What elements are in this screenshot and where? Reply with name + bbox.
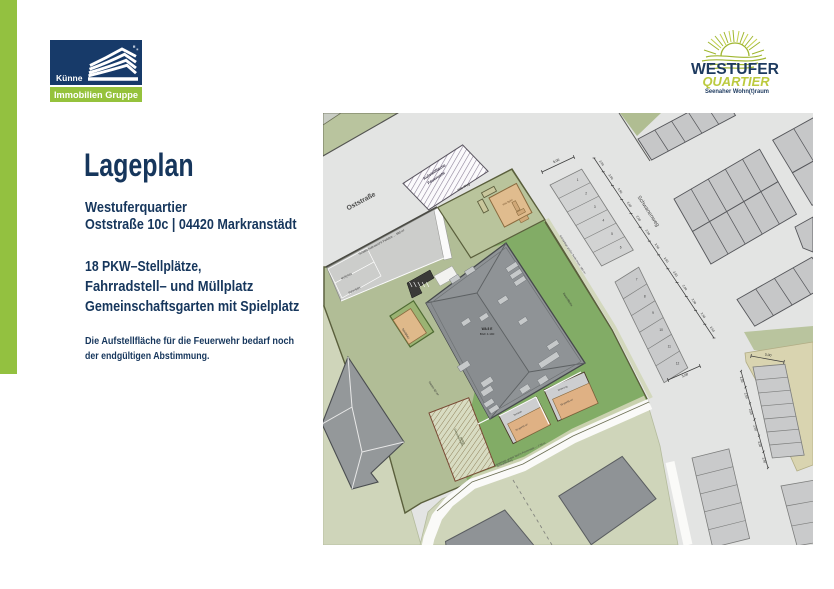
svg-text:11: 11	[668, 345, 672, 349]
svg-text:Immobilien Gruppe: Immobilien Gruppe	[54, 90, 138, 101]
svg-text:2: 2	[585, 192, 587, 196]
svg-text:6: 6	[620, 245, 622, 249]
svg-text:3: 3	[594, 205, 596, 209]
svg-text:QUARTIER: QUARTIER	[703, 74, 771, 89]
svg-text:9: 9	[652, 311, 654, 315]
svg-text:1: 1	[577, 178, 579, 182]
svg-text:BGF 4.190: BGF 4.190	[480, 332, 495, 336]
svg-text:4: 4	[603, 219, 605, 223]
svg-text:12: 12	[676, 361, 680, 365]
svg-text:5: 5	[611, 232, 613, 236]
svg-text:7: 7	[636, 278, 638, 282]
svg-text:Seenaher Wohn(t)raum: Seenaher Wohn(t)raum	[705, 89, 769, 95]
svg-text:10: 10	[659, 328, 663, 332]
svg-text:Künne: Künne	[56, 73, 83, 83]
svg-text:8: 8	[644, 294, 646, 298]
svg-text:WA 8 E: WA 8 E	[482, 327, 493, 331]
